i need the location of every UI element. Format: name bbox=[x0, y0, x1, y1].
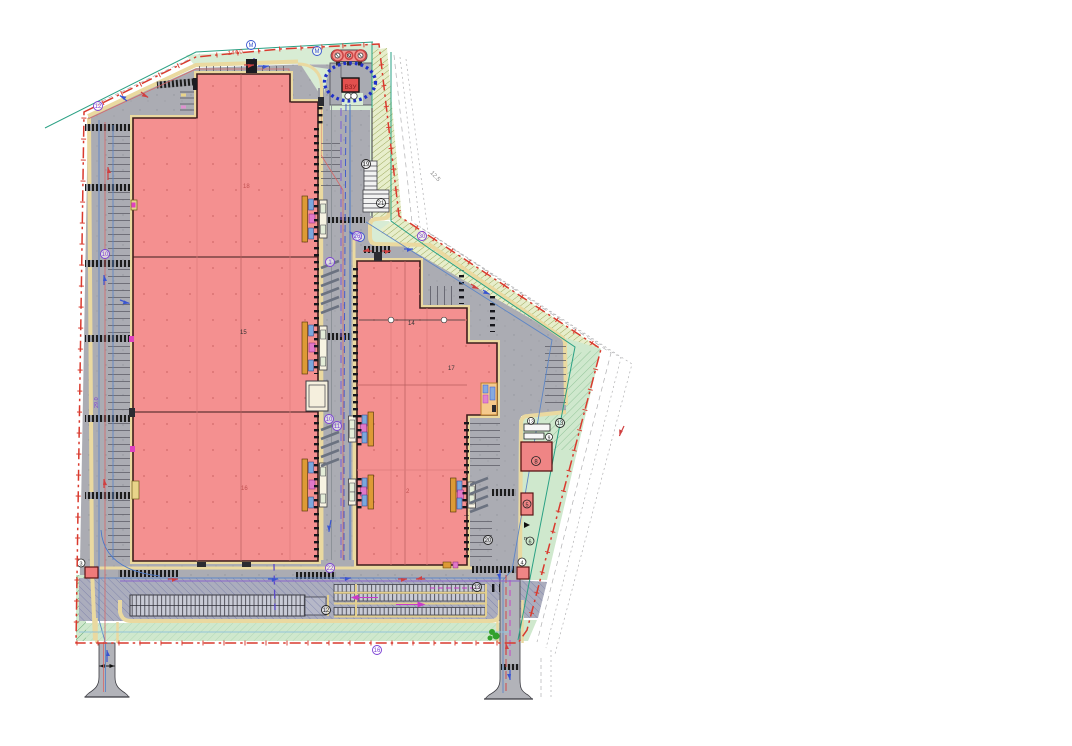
svg-text:13: 13 bbox=[528, 420, 534, 426]
svg-text:26: 26 bbox=[354, 234, 361, 240]
svg-text:17: 17 bbox=[448, 366, 455, 372]
svg-text:12: 12 bbox=[323, 608, 330, 614]
svg-text:M: M bbox=[315, 49, 320, 55]
svg-text:18: 18 bbox=[243, 184, 250, 190]
svg-text:20: 20 bbox=[485, 538, 492, 544]
svg-text:14: 14 bbox=[408, 321, 415, 327]
svg-text:13: 13 bbox=[557, 421, 564, 427]
svg-text:3: 3 bbox=[79, 562, 82, 568]
svg-text:13: 13 bbox=[474, 585, 481, 591]
svg-text:16: 16 bbox=[374, 648, 381, 654]
svg-text:M: M bbox=[249, 43, 254, 49]
svg-text:15: 15 bbox=[240, 330, 247, 336]
svg-text:9: 9 bbox=[548, 436, 551, 442]
svg-text:16: 16 bbox=[241, 486, 248, 492]
svg-text:22: 22 bbox=[327, 566, 334, 572]
svg-text:ВЗУ: ВЗУ bbox=[344, 84, 357, 91]
svg-text:30: 30 bbox=[419, 234, 426, 240]
svg-text:11: 11 bbox=[334, 424, 341, 430]
svg-text:п: п bbox=[524, 536, 527, 542]
svg-text:29.0: 29.0 bbox=[94, 397, 100, 408]
svg-text:19: 19 bbox=[363, 162, 370, 168]
svg-text:4: 4 bbox=[520, 561, 523, 567]
svg-text:12: 12 bbox=[95, 104, 102, 110]
svg-text:21: 21 bbox=[378, 201, 385, 207]
svg-text:5: 5 bbox=[525, 503, 528, 509]
svg-text:6: 6 bbox=[528, 540, 531, 546]
svg-text:10: 10 bbox=[326, 417, 333, 423]
svg-text:10: 10 bbox=[102, 252, 109, 258]
